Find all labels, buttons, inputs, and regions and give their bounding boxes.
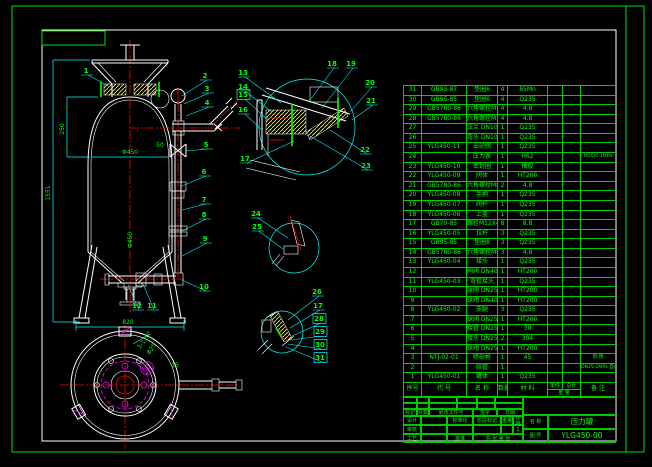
bom-cell-material: 304 xyxy=(508,335,548,344)
bom-cell-no: 6 xyxy=(404,325,422,334)
bom-row: 12 闸阀 DN40 1 HT200 xyxy=(404,267,615,277)
bom-cell-total-weight xyxy=(563,230,581,239)
bom-cell-unit-weight xyxy=(548,373,563,382)
bom-header-name: 名 称 xyxy=(467,383,498,396)
gauge-stem xyxy=(291,220,305,246)
bom-cell-code xyxy=(422,316,467,325)
callout-number: 25 xyxy=(252,223,262,231)
bom-cell-no: 8 xyxy=(404,306,422,315)
bom-cell-qty: 1 xyxy=(498,201,508,210)
bom-cell-remark xyxy=(581,335,615,344)
bom-header-remark: 备 注 xyxy=(581,383,615,396)
callout-number: 13 xyxy=(238,69,248,77)
bom-cell-name: 密封圈 xyxy=(467,163,498,172)
bom-cell-remark xyxy=(581,278,615,287)
bom-cell-remark xyxy=(581,105,615,114)
dimension-text: Φ25 xyxy=(145,342,158,356)
bom-cell-name: 球阀 DN40 xyxy=(467,297,498,306)
callout-number: 2 xyxy=(203,72,208,80)
bom-row: 11 YLG450-03 弯管接头 1 Q235 xyxy=(404,277,615,287)
bom-cell-name: 拉杆 xyxy=(467,230,498,239)
bom-cell-qty: 1 xyxy=(498,316,508,325)
detail-view-nozzle xyxy=(258,311,303,354)
dimension-text: Φ450 xyxy=(127,232,134,248)
callout-number: 18 xyxy=(327,60,337,68)
callout-number: 3 xyxy=(205,85,210,93)
handwheel xyxy=(141,362,154,375)
bom-cell-material: Q235 xyxy=(508,239,548,248)
bom-cell-no: 10 xyxy=(404,287,422,296)
bom-row: 4 球阀 DN25 1 HT200 xyxy=(404,344,615,354)
bom-cell-no: 22 xyxy=(404,172,422,181)
callout-number: 21 xyxy=(366,97,376,105)
bom-cell-code: YLG450-01 xyxy=(422,373,467,382)
bom-cell-code: YLG450-02 xyxy=(422,306,467,315)
bom-cell-remark xyxy=(581,249,615,258)
bom-row: 21 GB5780-86 六角螺栓M8 2 4.8 xyxy=(404,181,615,191)
bom-cell-unit-weight xyxy=(548,163,563,172)
bom-row: 17 GB70-85 螺栓M12X40 8 8.8 xyxy=(404,219,615,229)
callout-leader xyxy=(247,141,294,163)
bom-row: 27 法兰 DN100 1 Q235 xyxy=(404,123,615,133)
bom-cell-qty: 1 xyxy=(498,297,508,306)
bom-row: 14 GB5780-86 六角螺栓M8X15 3 4.8 xyxy=(404,248,615,258)
bom-row: 28 GB5780-86 六角螺栓M16X50 4 4.8 xyxy=(404,114,615,124)
tb-no-label: 图 号 xyxy=(523,429,548,443)
bom-cell-name: 压力表 xyxy=(467,153,498,162)
bom-cell-remark xyxy=(581,201,615,210)
bom-header-row: 序号 代 号 名 称 数量 材 料 单件 总计 重 量 备 注 xyxy=(404,382,615,396)
bom-cell-qty: 1 xyxy=(498,191,508,200)
bom-cell-code xyxy=(422,325,467,334)
bom-cell-total-weight xyxy=(563,153,581,162)
callout-leader xyxy=(182,204,206,210)
bom-cell-no: 13 xyxy=(404,258,422,267)
bom-cell-unit-weight xyxy=(548,143,563,152)
bom-row: 10 球阀 DN25 1 HT200 xyxy=(404,286,615,296)
bom-cell-qty: 2 xyxy=(498,335,508,344)
detail-view-gauge xyxy=(269,216,319,273)
tb-sheets: 共 张 第 张 xyxy=(473,434,523,443)
bom-cell-total-weight xyxy=(563,163,581,172)
bom-cell-code xyxy=(422,124,467,133)
dimension-text: 250 xyxy=(59,123,66,135)
bom-cell-qty: 1 xyxy=(498,268,508,277)
bom-cell-remark xyxy=(581,268,615,277)
bom-table: 31 GB93-87 垫圈6 4 85Mn 30 GB95-85 垫圈6 4 Q… xyxy=(403,85,616,397)
bom-cell-name: 闸阀 DN40 xyxy=(467,268,498,277)
bom-cell-name: 出砂阀 xyxy=(467,143,498,152)
bom-cell-name: 罐体 xyxy=(467,373,498,382)
callout-leader xyxy=(245,77,281,103)
bom-cell-unit-weight xyxy=(548,316,563,325)
bom-header-qty: 数量 xyxy=(498,383,508,396)
bom-cell-remark xyxy=(581,316,615,325)
bom-cell-code: YLG450-09 xyxy=(422,172,467,181)
bom-cell-no: 25 xyxy=(404,143,422,152)
tb-empty xyxy=(421,416,447,425)
bom-row: 16 YLG450-05 拉杆 3 Q235 xyxy=(404,229,615,239)
bom-cell-unit-weight xyxy=(548,220,563,229)
bom-cell-total-weight xyxy=(563,354,581,363)
bom-cell-qty: 1 xyxy=(498,258,508,267)
tb-empty xyxy=(473,425,501,434)
bom-cell-remark xyxy=(581,373,615,382)
bom-cell-unit-weight xyxy=(548,230,563,239)
revision-box xyxy=(42,31,105,45)
callout-number: 23 xyxy=(361,162,371,170)
bom-cell-material xyxy=(508,364,548,373)
bom-row: 22 YLG450-09 阀体 1 HT200 xyxy=(404,171,615,181)
callout-numbers: 1234567891011121314151617181920212223242… xyxy=(81,60,378,363)
bom-cell-no: 23 xyxy=(404,163,422,172)
piping xyxy=(100,88,240,310)
bom-cell-qty: 1 xyxy=(498,345,508,354)
bom-cell-remark xyxy=(581,297,615,306)
tb-process: 工艺 xyxy=(403,434,421,443)
bom-cell-name: 六角螺栓M8 xyxy=(467,182,498,191)
bom-cell-name: 球阀 DN25 xyxy=(467,345,498,354)
bom-cell-total-weight xyxy=(563,191,581,200)
bom-row: 3 NTJ-02-01 喷砂枪 1 45 借 用 xyxy=(404,353,615,363)
bom-cell-code: GB95-85 xyxy=(422,239,467,248)
bom-cell-material: HT200 xyxy=(508,268,548,277)
bom-cell-no: 14 xyxy=(404,249,422,258)
bom-cell-material: HT200 xyxy=(508,297,548,306)
bom-cell-name: 阀杆 xyxy=(467,201,498,210)
bom-cell-material: Q235 xyxy=(508,278,548,287)
bom-cell-code: GB70-85 xyxy=(422,220,467,229)
bom-cell-name: 喷砂枪 xyxy=(467,354,498,363)
callout-leader xyxy=(259,231,283,249)
bom-cell-name: 垫圈6 xyxy=(467,86,498,95)
tb-scale: 比例 xyxy=(513,416,523,425)
dimension-lines xyxy=(53,60,184,344)
bom-cell-material: 8.8 xyxy=(508,220,548,229)
callout-number: 7 xyxy=(202,196,207,204)
bom-cell-qty: 8 xyxy=(498,220,508,229)
tb-approve: 批准 xyxy=(447,434,473,443)
bom-cell-total-weight xyxy=(563,297,581,306)
bom-cell-code xyxy=(422,335,467,344)
tb-change-doc: 更改文件号 xyxy=(429,409,473,416)
bom-cell-total-weight xyxy=(563,335,581,344)
bom-row: 25 YLG450-11 出砂阀 1 Q235 xyxy=(404,142,615,152)
bom-cell-no: 2 xyxy=(404,364,422,373)
bom-cell-total-weight xyxy=(563,373,581,382)
bom-cell-unit-weight xyxy=(548,153,563,162)
bom-cell-remark xyxy=(581,220,615,229)
bom-cell-remark xyxy=(581,325,615,334)
callout-number: 28 xyxy=(314,315,324,323)
tb-date: 日期 xyxy=(497,409,523,416)
bom-cell-total-weight xyxy=(563,134,581,143)
bom-cell-material: Q235 xyxy=(508,124,548,133)
bom-cell-total-weight xyxy=(563,182,581,191)
bom-cell-code: YLG450-06 xyxy=(422,211,467,220)
callout-leader xyxy=(186,149,208,151)
bom-cell-remark xyxy=(581,163,615,172)
bom-cell-code: YLG450-04 xyxy=(422,258,467,267)
bom-cell-total-weight xyxy=(563,124,581,133)
bom-cell-remark: 借 用 xyxy=(581,354,615,363)
bom-cell-unit-weight xyxy=(548,201,563,210)
tb-design: 设计 xyxy=(403,416,421,425)
bom-cell-code xyxy=(422,287,467,296)
bom-cell-no: 28 xyxy=(404,115,422,124)
bom-cell-name: 胶管 xyxy=(467,364,498,373)
bom-cell-remark xyxy=(581,211,615,220)
tb-name-value: 压力罐 xyxy=(548,415,616,429)
callout-number: 30 xyxy=(315,341,325,349)
callout-number: 26 xyxy=(312,288,322,296)
bom-cell-code: YLG450-03 xyxy=(422,278,467,287)
bom-cell-name: 接头 DN25 xyxy=(467,335,498,344)
bom-cell-unit-weight xyxy=(548,278,563,287)
bom-cell-material: Q235 xyxy=(508,373,548,382)
callout-number: 16 xyxy=(238,106,248,114)
bom-cell-no: 1 xyxy=(404,373,422,382)
bom-cell-unit-weight xyxy=(548,249,563,258)
bom-cell-no: 24 xyxy=(404,153,422,162)
bom-cell-material: HT200 xyxy=(508,316,548,325)
bom-cell-unit-weight xyxy=(548,287,563,296)
bom-header-code: 代 号 xyxy=(422,383,467,396)
bom-cell-material: H62 xyxy=(508,153,548,162)
legs xyxy=(74,245,185,323)
bom-cell-remark xyxy=(581,172,615,181)
callout-number: 6 xyxy=(202,168,207,176)
bom-cell-qty: 1 xyxy=(498,373,508,382)
bom-cell-code: GB5780-86 xyxy=(422,115,467,124)
bom-cell-unit-weight xyxy=(548,134,563,143)
bom-cell-total-weight xyxy=(563,364,581,373)
bom-cell-material: 4.8 xyxy=(508,115,548,124)
wedge-section xyxy=(306,108,348,140)
bom-cell-qty: 1 xyxy=(498,172,508,181)
bom-row: 30 GB95-85 垫圈6 4 Q235 xyxy=(404,95,615,105)
bom-cell-qty: 1 xyxy=(498,364,508,373)
bom-cell-code: GB93-87 xyxy=(422,86,467,95)
detail-balloon xyxy=(151,90,169,108)
tb-scale-value: 1 xyxy=(513,425,523,434)
bom-cell-qty: 1 xyxy=(498,287,508,296)
callout-number: 4 xyxy=(205,99,210,107)
callout-leader xyxy=(182,80,207,96)
bom-cell-material: Q235 xyxy=(508,191,548,200)
bom-cell-total-weight xyxy=(563,96,581,105)
bom-cell-unit-weight xyxy=(548,211,563,220)
bom-cell-qty: 1 xyxy=(498,325,508,334)
bom-cell-no: 5 xyxy=(404,335,422,344)
bom-row: 20 YLG450-08 手柄 1 Q235 xyxy=(404,190,615,200)
title-block: 标记 处数 更改文件号 签字 日期 设计 审核 工艺 标准化 批准 阶段标记 重… xyxy=(403,397,616,443)
bom-cell-total-weight xyxy=(563,105,581,114)
callout-number: 22 xyxy=(360,146,370,154)
bom-cell-code: GB95-85 xyxy=(422,96,467,105)
bom-cell-material: Q235 xyxy=(508,258,548,267)
bom-cell-qty: 1 xyxy=(498,153,508,162)
bom-cell-material: 30 xyxy=(508,325,548,334)
bom-cell-remark xyxy=(581,345,615,354)
bom-row: 19 YLG450-07 阀杆 1 Q235 xyxy=(404,200,615,210)
callout-number: 19 xyxy=(346,60,356,68)
bom-cell-code: GB5780-86 xyxy=(422,249,467,258)
bom-cell-unit-weight xyxy=(548,172,563,181)
bom-cell-code: GB5780-86 xyxy=(422,182,467,191)
bom-cell-total-weight xyxy=(563,211,581,220)
bom-cell-unit-weight xyxy=(548,258,563,267)
cad-sheet: { "colors": { "background": "#000000", "… xyxy=(0,0,652,467)
bom-cell-unit-weight xyxy=(548,191,563,200)
bom-cell-remark: DN25-1MPa 自备 xyxy=(581,364,615,373)
tb-sign: 签字 xyxy=(473,409,497,416)
bom-cell-total-weight xyxy=(563,143,581,152)
tb-mark: 标记 xyxy=(403,409,417,416)
bom-cell-material: 橡胶 xyxy=(508,163,548,172)
dimension-text: 15 xyxy=(171,362,179,369)
bom-cell-material: HT200 xyxy=(508,345,548,354)
bom-cell-material: HT200 xyxy=(508,287,548,296)
bom-row: 18 YLG450-06 上盖 1 Q235 xyxy=(404,210,615,220)
dimension-text: Φ450 xyxy=(122,149,138,156)
bom-cell-qty: 1 xyxy=(498,163,508,172)
tb-empty xyxy=(447,425,473,434)
bom-cell-qty: 4 xyxy=(498,96,508,105)
callout-leader xyxy=(186,107,209,116)
bom-cell-unit-weight xyxy=(548,124,563,133)
bom-cell-total-weight xyxy=(563,287,581,296)
bom-cell-unit-weight xyxy=(548,364,563,373)
bom-cell-no: 31 xyxy=(404,86,422,95)
bom-cell-material: 4.8 xyxy=(508,105,548,114)
bom-cell-remark xyxy=(581,239,615,248)
bom-cell-code: YLG450-10 xyxy=(422,163,467,172)
bom-cell-material: Q235 xyxy=(508,306,548,315)
bom-cell-remark xyxy=(581,96,615,105)
bom-cell-code: YLG450-11 xyxy=(422,143,467,152)
bom-header-weight-label: 重 量 xyxy=(548,390,580,396)
bom-cell-remark xyxy=(581,258,615,267)
bom-cell-remark xyxy=(581,86,615,95)
bom-cell-no: 19 xyxy=(404,201,422,210)
bom-cell-remark xyxy=(581,124,615,133)
bom-cell-no: 15 xyxy=(404,239,422,248)
bom-cell-qty: 1 xyxy=(498,354,508,363)
bom-cell-no: 26 xyxy=(404,134,422,143)
bom-cell-remark xyxy=(581,115,615,124)
bom-header-weight: 单件 总计 重 量 xyxy=(548,383,581,396)
detail-view-large xyxy=(246,79,355,180)
bom-row: 24 压力表 1 H62 M20/0-1MPa xyxy=(404,152,615,162)
bom-cell-unit-weight xyxy=(548,182,563,191)
bom-cell-qty: 3 xyxy=(498,239,508,248)
callout-number: 11 xyxy=(147,302,157,310)
bom-row: 2 胶管 1 DN25-1MPa 自备 xyxy=(404,363,615,373)
bom-cell-unit-weight xyxy=(548,105,563,114)
bom-cell-total-weight xyxy=(563,316,581,325)
bom-cell-name: 接管 DN25 xyxy=(467,325,498,334)
bom-header-total-weight: 总计 xyxy=(563,383,580,389)
bom-cell-no: 11 xyxy=(404,278,422,287)
bom-cell-code: NTJ-02-01 xyxy=(422,354,467,363)
bom-cell-total-weight xyxy=(563,278,581,287)
bom-cell-remark xyxy=(581,191,615,200)
callout-number: 29 xyxy=(315,328,325,336)
bom-cell-no: 3 xyxy=(404,354,422,363)
tb-weight: 重量 xyxy=(501,416,513,425)
tb-name-label: 名 称 xyxy=(523,415,548,429)
callout-number: 10 xyxy=(199,283,209,291)
bom-row: 29 GB5780-86 六角螺栓M18 4 4.8 xyxy=(404,104,615,114)
bom-cell-unit-weight xyxy=(548,354,563,363)
bom-cell-qty: 3 xyxy=(498,306,508,315)
bom-cell-material: 4.8 xyxy=(508,249,548,258)
bom-cell-remark xyxy=(581,143,615,152)
tb-check: 审核 xyxy=(403,425,421,434)
callout-leader xyxy=(182,219,206,231)
bom-cell-name: 支腿 xyxy=(467,306,498,315)
bom-cell-unit-weight xyxy=(548,268,563,277)
bom-cell-unit-weight xyxy=(548,86,563,95)
bom-cell-unit-weight xyxy=(548,325,563,334)
bom-cell-name: 接头 xyxy=(467,258,498,267)
bom-cell-total-weight xyxy=(563,268,581,277)
bom-cell-code: YLG450-05 xyxy=(422,230,467,239)
bom-cell-qty: 3 xyxy=(498,230,508,239)
bom-cell-no: 9 xyxy=(404,297,422,306)
bom-cell-total-weight xyxy=(563,86,581,95)
bom-cell-name: 弯管接头 xyxy=(467,278,498,287)
callout-leader xyxy=(310,68,334,100)
bom-cell-material: Q235 xyxy=(508,230,548,239)
bom-row: 8 YLG450-02 支腿 3 Q235 xyxy=(404,305,615,315)
tb-empty xyxy=(421,434,447,443)
callout-number: 17 xyxy=(240,155,250,163)
bom-cell-remark: M20/0-1MPa xyxy=(581,153,615,162)
bom-row: 1 YLG450-01 罐体 1 Q235 xyxy=(404,372,615,382)
bom-cell-unit-weight xyxy=(548,239,563,248)
vessel-front-view xyxy=(74,40,185,323)
bom-cell-no: 21 xyxy=(404,182,422,191)
bom-cell-code xyxy=(422,297,467,306)
tb-company xyxy=(523,397,616,415)
tb-stage: 阶段标记 xyxy=(473,416,501,425)
bom-rows: 31 GB93-87 垫圈6 4 85Mn 30 GB95-85 垫圈6 4 Q… xyxy=(404,86,615,382)
bom-cell-material: 85Mn xyxy=(508,86,548,95)
callout-number: 31 xyxy=(315,354,325,362)
bom-cell-qty: 4 xyxy=(498,105,508,114)
bom-cell-total-weight xyxy=(563,239,581,248)
bom-cell-remark xyxy=(581,134,615,143)
bom-cell-no: 4 xyxy=(404,345,422,354)
bom-cell-qty: 1 xyxy=(498,143,508,152)
callout-number: 12 xyxy=(132,302,142,310)
bom-row: 26 弯头 DN100 1 Q235 xyxy=(404,133,615,143)
bom-cell-name: 弯头 DN100 xyxy=(467,134,498,143)
bom-cell-qty: 3 xyxy=(498,249,508,258)
bom-cell-name: 六角螺栓M18 xyxy=(467,105,498,114)
bom-cell-code: YLG450-07 xyxy=(422,201,467,210)
bom-cell-total-weight xyxy=(563,249,581,258)
bom-cell-code: YLG450-08 xyxy=(422,191,467,200)
bom-cell-remark xyxy=(581,306,615,315)
bom-cell-total-weight xyxy=(563,201,581,210)
bom-cell-material: Q235 xyxy=(508,201,548,210)
callout-number: 17 xyxy=(313,302,323,310)
bom-cell-code xyxy=(422,153,467,162)
bom-cell-material: HT200 xyxy=(508,172,548,181)
